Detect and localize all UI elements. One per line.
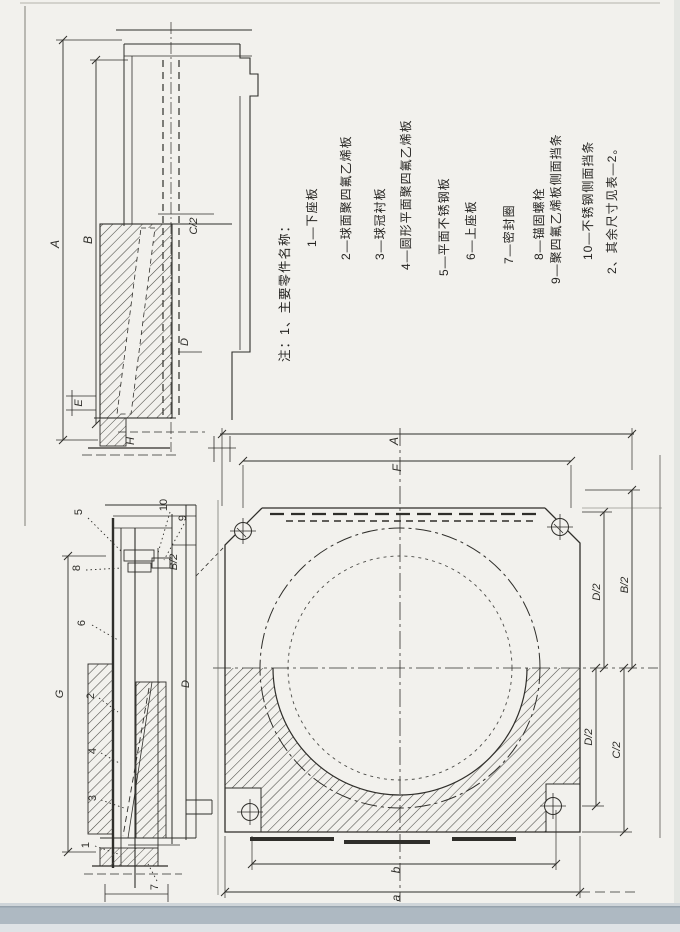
engineering-drawing-canvas: A B C/2 D E H	[0, 0, 680, 932]
legend-item-8: 8—锚固螺栓	[531, 187, 546, 260]
dim-label-A-plan: A	[387, 437, 401, 446]
callout-4: 4	[87, 748, 99, 754]
dim-label-b-plan: b	[389, 866, 403, 873]
dim-label-C2-plan: C/2	[611, 741, 623, 758]
legend-item-7: 7—密封圈	[501, 204, 516, 264]
legend-item-6: 6—上座板	[463, 200, 478, 260]
callout-6: 6	[76, 620, 88, 626]
callout-7: 7	[149, 884, 161, 890]
legend-item-1: 1—下座板	[304, 187, 319, 247]
legend-footnote: 2、其余尺寸见表—2。	[604, 142, 619, 274]
callout-9: 9	[177, 515, 189, 521]
callout-1: 1	[80, 842, 92, 848]
legend-item-2: 2—球面聚四氟乙烯板	[339, 135, 353, 260]
callout-10: 10	[158, 499, 170, 511]
legend-item-5: 5—平面不锈钢板	[437, 177, 451, 276]
dim-label-H-upper: H	[125, 437, 137, 445]
dim-label-B2-plan: B/2	[619, 577, 631, 594]
dim-label-E-upper: E	[73, 399, 85, 407]
dim-label-G-lower: G	[54, 689, 66, 698]
legend-item-4: 4—圆形平面聚四氟乙烯板	[399, 119, 413, 270]
callout-3: 3	[87, 795, 99, 801]
dim-label-C2-upper: C/2	[188, 217, 200, 234]
dim-label-a-plan: a	[389, 894, 403, 901]
legend-item-3: 3—球冠衬板	[373, 187, 387, 260]
dim-label-B-upper: B	[81, 236, 95, 244]
legend-header: 注：1、主要零件名称：	[277, 219, 292, 362]
dim-label-B2-lower: B/2	[168, 554, 180, 571]
callout-8: 8	[71, 565, 83, 571]
scanned-drawing-page: A B C/2 D E H	[0, 0, 680, 932]
callout-5: 5	[73, 509, 85, 515]
dim-label-D-lower: D	[180, 680, 192, 688]
dim-label-A-upper: A	[48, 240, 62, 249]
dim-label-D2-lower-plan: D/2	[583, 728, 595, 745]
dim-label-F-plan: F	[390, 464, 404, 472]
legend-item-10: 10—不锈钢侧面挡条	[581, 141, 595, 260]
dim-label-D2-upper-plan: D/2	[591, 583, 603, 600]
legend-item-9: 9—聚四氟乙烯板侧面挡条	[549, 133, 563, 284]
dim-label-D-upper: D	[179, 338, 191, 346]
callout-2: 2	[85, 693, 97, 699]
